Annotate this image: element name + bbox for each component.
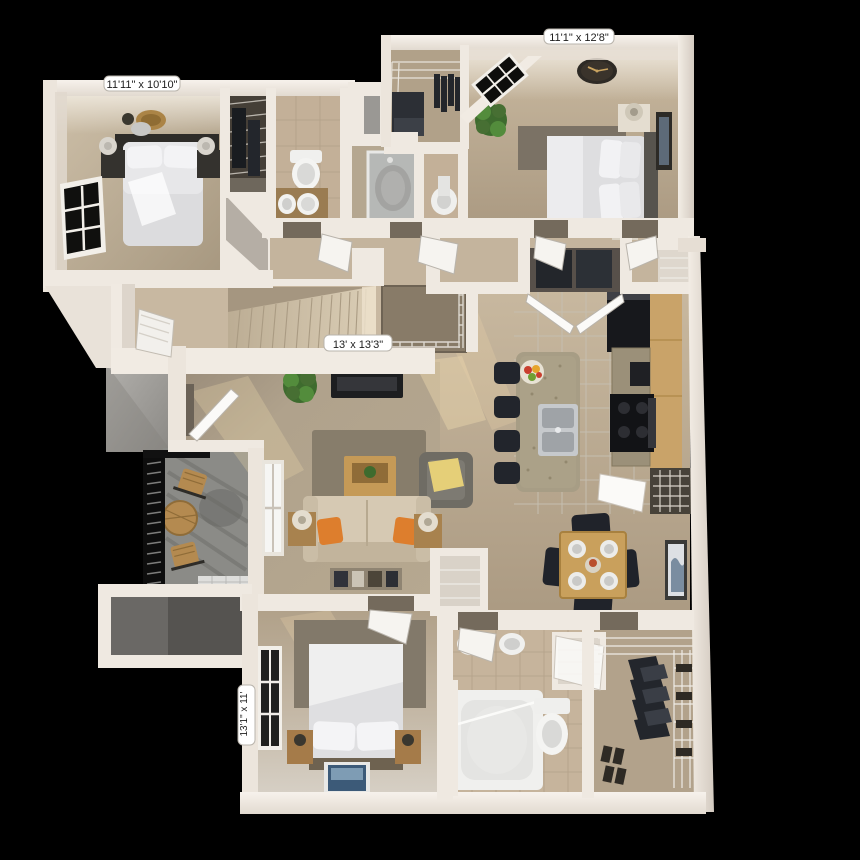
svg-text:13' x 13'3": 13' x 13'3" bbox=[333, 339, 383, 351]
svg-text:11'11" x 10'10": 11'11" x 10'10" bbox=[107, 79, 178, 91]
svg-text:11'1" x 12'8": 11'1" x 12'8" bbox=[549, 32, 609, 44]
svg-text:13'1" x 11': 13'1" x 11' bbox=[239, 691, 250, 736]
